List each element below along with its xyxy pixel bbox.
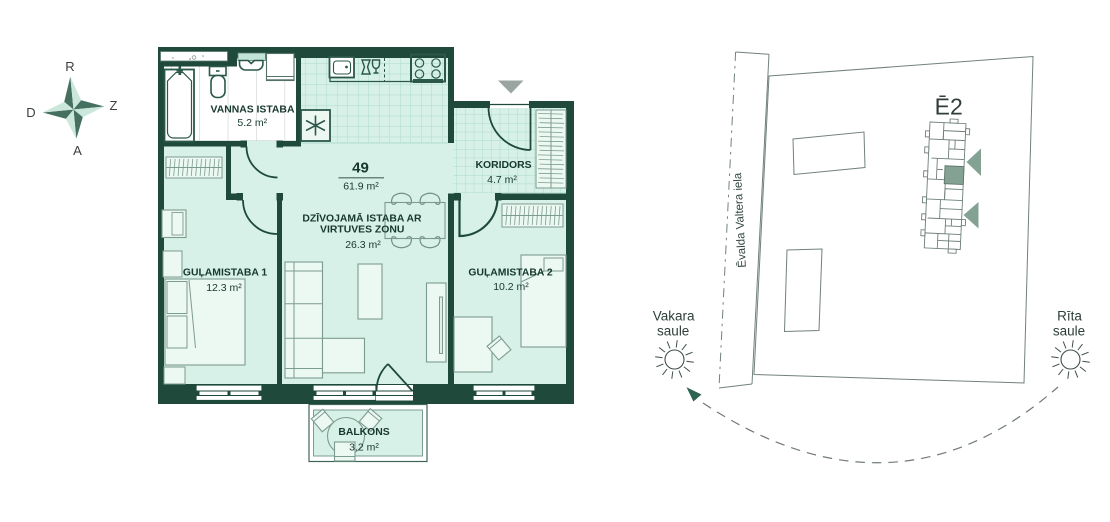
svg-text:Rīta: Rīta xyxy=(1057,309,1082,324)
svg-text:49: 49 xyxy=(352,160,369,177)
svg-text:R: R xyxy=(65,59,74,74)
svg-text:61.9 m²: 61.9 m² xyxy=(343,181,379,193)
svg-text:GUĻAMISTABA 1: GUĻAMISTABA 1 xyxy=(183,268,267,279)
svg-text:26.3 m²: 26.3 m² xyxy=(345,239,381,251)
svg-text:VANNAS ISTABA: VANNAS ISTABA xyxy=(211,105,295,116)
svg-text:4.7 m²: 4.7 m² xyxy=(487,174,517,186)
svg-text:Ē2: Ē2 xyxy=(935,94,963,120)
svg-text:KORIDORS: KORIDORS xyxy=(476,160,532,171)
svg-text:BALKONS: BALKONS xyxy=(338,427,389,438)
svg-text:A: A xyxy=(73,143,82,158)
svg-text:Vakara: Vakara xyxy=(653,309,695,324)
svg-text:3.2 m²: 3.2 m² xyxy=(349,441,379,453)
svg-text:DZĪVOJAMĀ ISTABA AR: DZĪVOJAMĀ ISTABA AR xyxy=(302,212,422,224)
svg-text:saule: saule xyxy=(657,324,689,339)
svg-text:5.2 m²: 5.2 m² xyxy=(237,117,267,129)
svg-text:12.3 m²: 12.3 m² xyxy=(206,282,242,294)
svg-text:VIRTUVES ZONU: VIRTUVES ZONU xyxy=(320,224,404,235)
svg-text:saule: saule xyxy=(1053,324,1085,339)
svg-text:10.2 m²: 10.2 m² xyxy=(493,281,529,293)
svg-text:D: D xyxy=(26,105,35,120)
svg-text:Z: Z xyxy=(110,98,118,113)
svg-text:GUĻAMISTABA 2: GUĻAMISTABA 2 xyxy=(468,268,552,279)
